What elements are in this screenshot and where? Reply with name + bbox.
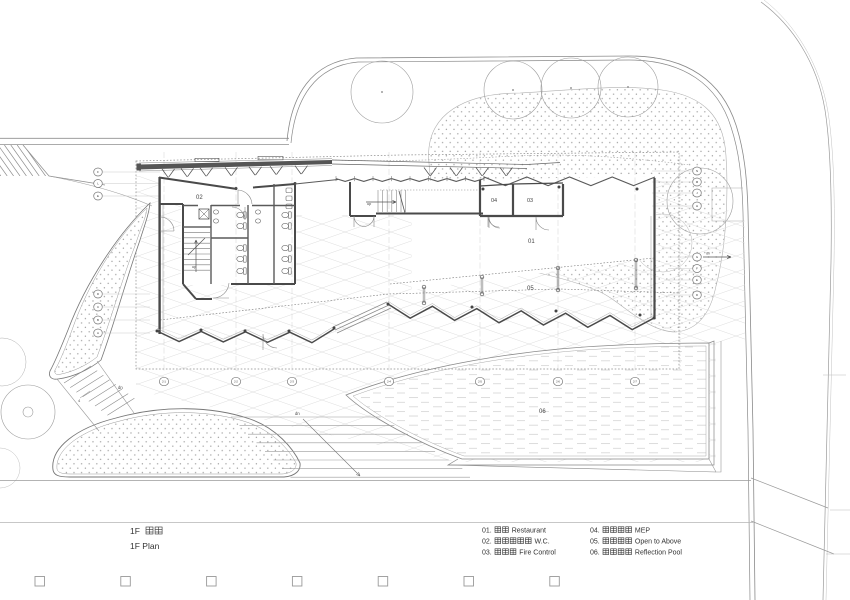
svg-text:01: 01 bbox=[528, 239, 535, 245]
svg-text:2-2: 2-2 bbox=[234, 380, 238, 384]
svg-text:E: E bbox=[696, 278, 698, 282]
svg-text:D: D bbox=[97, 292, 99, 296]
svg-text:06.: 06. bbox=[590, 550, 600, 557]
svg-text:F: F bbox=[97, 170, 99, 174]
svg-text:01.: 01. bbox=[482, 528, 492, 535]
svg-text:2-3: 2-3 bbox=[290, 380, 294, 384]
svg-text:Open to Above: Open to Above bbox=[635, 539, 681, 546]
svg-text:1F Plan: 1F Plan bbox=[130, 541, 160, 551]
svg-text:1F: 1F bbox=[130, 526, 140, 536]
svg-text:2-1: 2-1 bbox=[162, 380, 166, 384]
svg-text:A: A bbox=[97, 331, 99, 335]
svg-text:dh: dh bbox=[706, 252, 710, 256]
svg-text:F: F bbox=[696, 267, 698, 271]
svg-text:04: 04 bbox=[491, 198, 497, 204]
svg-text:06: 06 bbox=[539, 409, 546, 415]
svg-text:B: B bbox=[97, 318, 99, 322]
svg-text:04.: 04. bbox=[590, 528, 600, 535]
svg-text:W.C.: W.C. bbox=[535, 539, 550, 546]
svg-text:02.: 02. bbox=[482, 539, 492, 546]
svg-text:MEP: MEP bbox=[635, 528, 651, 535]
svg-text:2-7: 2-7 bbox=[633, 380, 637, 384]
svg-text:2-6: 2-6 bbox=[556, 380, 560, 384]
svg-text:dn: dn bbox=[118, 385, 123, 390]
svg-text:N: N bbox=[696, 169, 698, 173]
svg-text:2-4: 2-4 bbox=[387, 380, 391, 384]
svg-text:Fire Control: Fire Control bbox=[519, 550, 556, 557]
svg-text:05.: 05. bbox=[590, 539, 600, 546]
svg-text:E: E bbox=[97, 194, 99, 198]
svg-text:Restaurant: Restaurant bbox=[512, 528, 546, 535]
svg-text:Reflection Pool: Reflection Pool bbox=[635, 550, 683, 557]
svg-text:dn: dn bbox=[295, 411, 300, 416]
svg-text:up: up bbox=[192, 265, 196, 269]
svg-text:up: up bbox=[367, 202, 371, 206]
svg-text:03.: 03. bbox=[482, 550, 492, 557]
svg-text:2-5: 2-5 bbox=[478, 380, 482, 384]
svg-text:03: 03 bbox=[527, 198, 533, 204]
svg-text:C: C bbox=[97, 305, 99, 309]
svg-text:05: 05 bbox=[527, 286, 534, 292]
svg-text:H: H bbox=[696, 204, 698, 208]
svg-text:02: 02 bbox=[196, 195, 203, 201]
svg-text:D: D bbox=[696, 293, 698, 297]
